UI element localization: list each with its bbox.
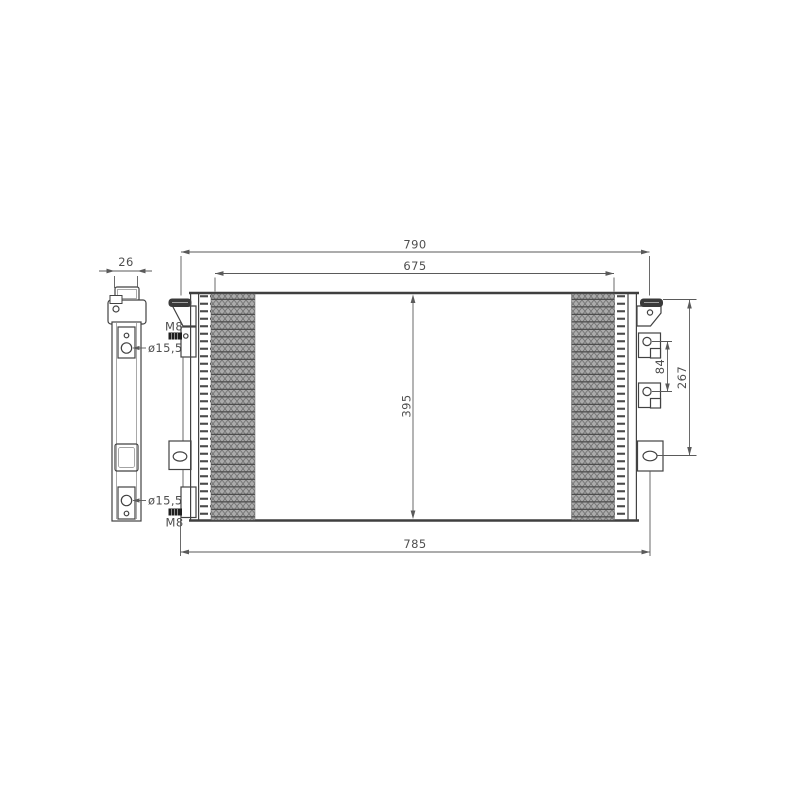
- arrow-left-icon: [181, 550, 190, 555]
- left-lower-port-plate: [181, 487, 196, 518]
- arrow-up-icon: [687, 300, 692, 309]
- fin-edge-left: [200, 295, 211, 519]
- stud-m8-top: M8: [165, 320, 183, 340]
- dim-label-overall-top: 790: [403, 238, 426, 252]
- label-port-top: ø15,5: [148, 341, 183, 355]
- arrow-up-icon: [665, 342, 670, 350]
- m8-stud: [169, 509, 183, 516]
- dim-label-bracket-span: 267: [675, 366, 689, 389]
- arrow-down-icon: [411, 511, 416, 520]
- arrow-right-icon: [642, 550, 651, 555]
- arrow-right-icon: [641, 250, 650, 255]
- dim-core-height: 395: [400, 295, 416, 520]
- hatch-core-right: [572, 294, 615, 520]
- label-thread-top: M8: [165, 320, 183, 334]
- right-upper-fitting-block: [651, 349, 661, 359]
- right-lower-fitting-block: [651, 399, 661, 409]
- hatch-core-left: [211, 294, 255, 520]
- dim-label-side-depth: 26: [118, 255, 133, 269]
- side-collar-notch: [110, 296, 122, 304]
- mount-tab-top-right: [637, 306, 661, 326]
- arrow-left-icon: [181, 250, 190, 255]
- m8-stud: [169, 333, 183, 340]
- dim-label-core-width: 675: [403, 259, 426, 273]
- condenser-dimension-drawing: 26 ø15,5 ø15,5: [0, 0, 800, 800]
- arrow-left-icon: [215, 271, 224, 276]
- dim-bracket-span: 267: [658, 300, 697, 456]
- arrow-up-icon: [411, 295, 416, 304]
- dim-core-width: 675: [215, 259, 614, 292]
- side-view: 26 ø15,5 ø15,5: [99, 255, 183, 521]
- oval-bracket-right: [638, 441, 664, 471]
- dim-side-depth: 26: [99, 255, 152, 288]
- oval-bracket-left: [169, 441, 191, 470]
- dim-label-port-spacing: 84: [653, 359, 667, 374]
- left-upper-port-plate: [181, 327, 196, 357]
- technical-drawing-canvas: 26 ø15,5 ø15,5: [0, 0, 800, 800]
- dim-label-overall-bottom: 785: [403, 537, 426, 551]
- tab-hole: [647, 310, 652, 315]
- arrow-right-icon: [606, 271, 615, 276]
- label-port-bottom: ø15,5: [148, 494, 183, 508]
- fin-edge-right: [614, 295, 625, 519]
- dim-label-core-height: 395: [400, 394, 414, 417]
- arrow-left-icon: [138, 269, 146, 274]
- main-view: M8 M8: [165, 293, 663, 530]
- arrow-right-icon: [107, 269, 115, 274]
- arrow-down-icon: [687, 447, 692, 456]
- arrow-down-icon: [665, 384, 670, 392]
